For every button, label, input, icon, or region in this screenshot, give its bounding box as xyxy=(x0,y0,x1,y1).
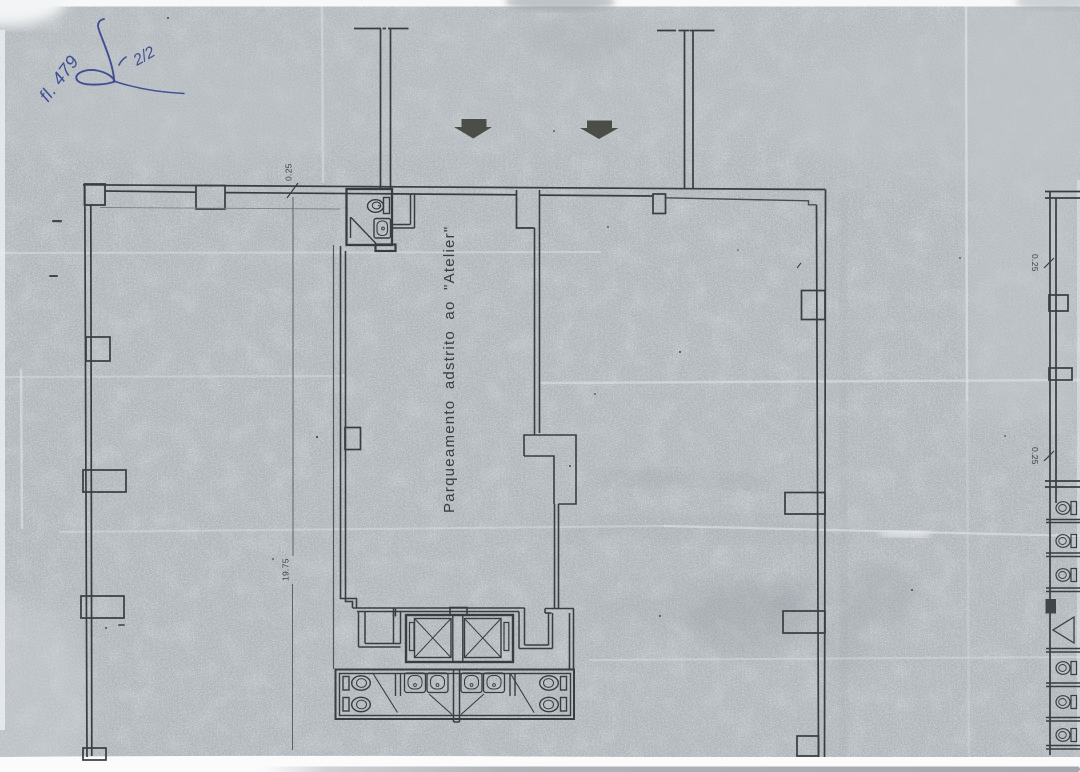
svg-text:0.25: 0.25 xyxy=(1030,254,1040,272)
svg-text:Parqueamento adstrito ao "A: Parqueamento adstrito ao "Atelier" xyxy=(441,226,458,513)
svg-text:0.25: 0.25 xyxy=(1030,447,1040,465)
svg-text:19.75: 19.75 xyxy=(281,558,291,581)
svg-text:0.25: 0.25 xyxy=(284,163,294,181)
